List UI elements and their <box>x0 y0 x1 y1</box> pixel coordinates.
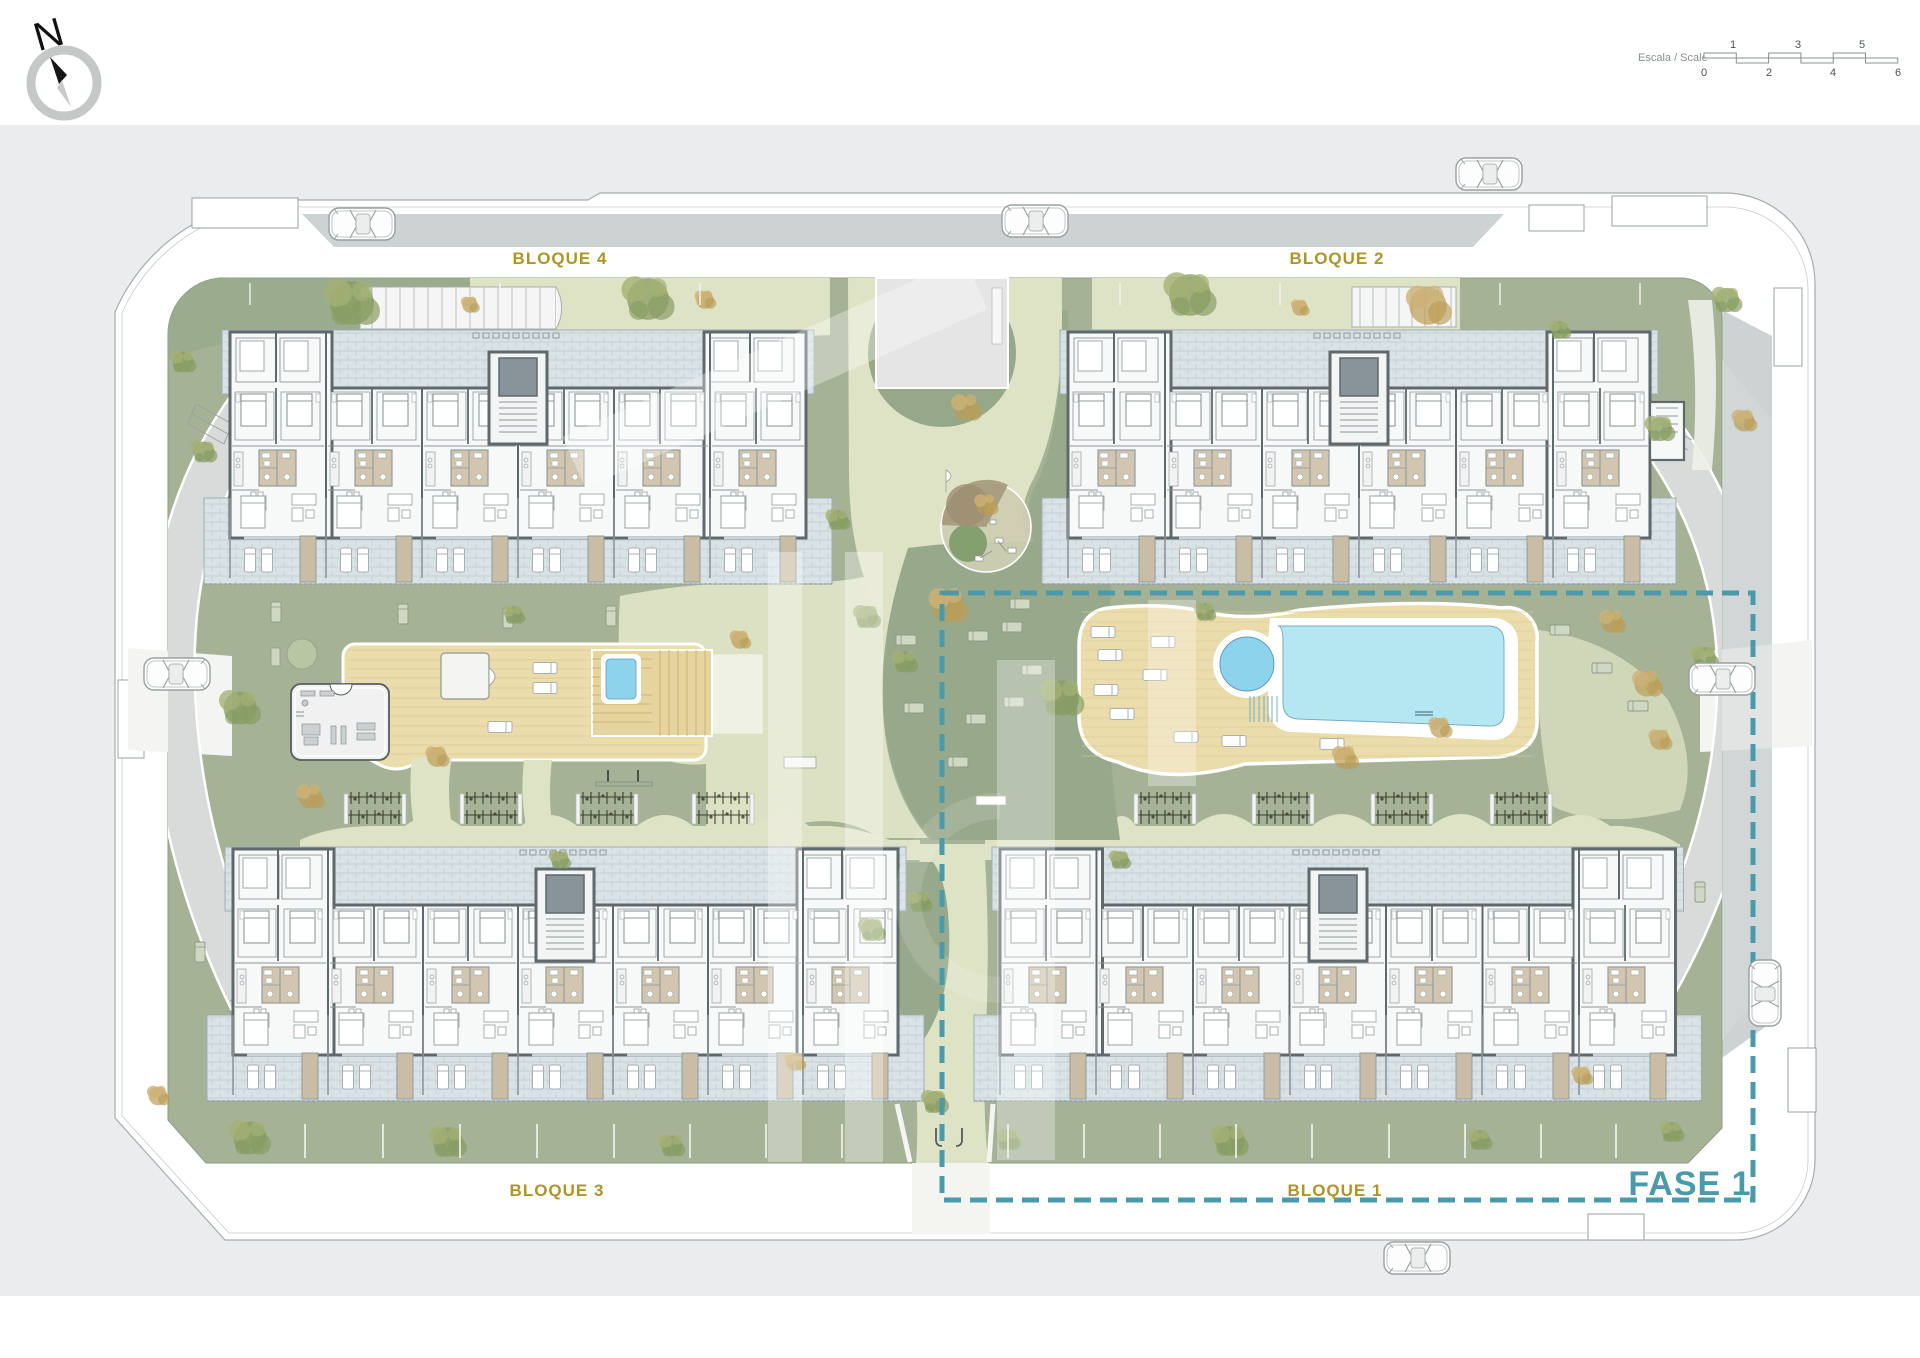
svg-text:FASE 1: FASE 1 <box>1628 1165 1751 1203</box>
svg-text:2: 2 <box>1766 67 1772 79</box>
svg-text:0: 0 <box>1701 67 1707 79</box>
svg-text:BLOQUE 3: BLOQUE 3 <box>510 1181 605 1200</box>
svg-text:4: 4 <box>1830 67 1836 79</box>
svg-text:BLOQUE 1: BLOQUE 1 <box>1288 1181 1383 1200</box>
svg-text:5: 5 <box>1859 39 1865 51</box>
svg-text:1: 1 <box>1730 39 1736 51</box>
svg-text:BLOQUE 2: BLOQUE 2 <box>1290 249 1385 268</box>
svg-text:BLOQUE 4: BLOQUE 4 <box>513 249 608 268</box>
svg-text:3: 3 <box>1795 39 1801 51</box>
svg-text:Escala / Scale: Escala / Scale <box>1638 52 1708 64</box>
svg-text:6: 6 <box>1895 67 1901 79</box>
